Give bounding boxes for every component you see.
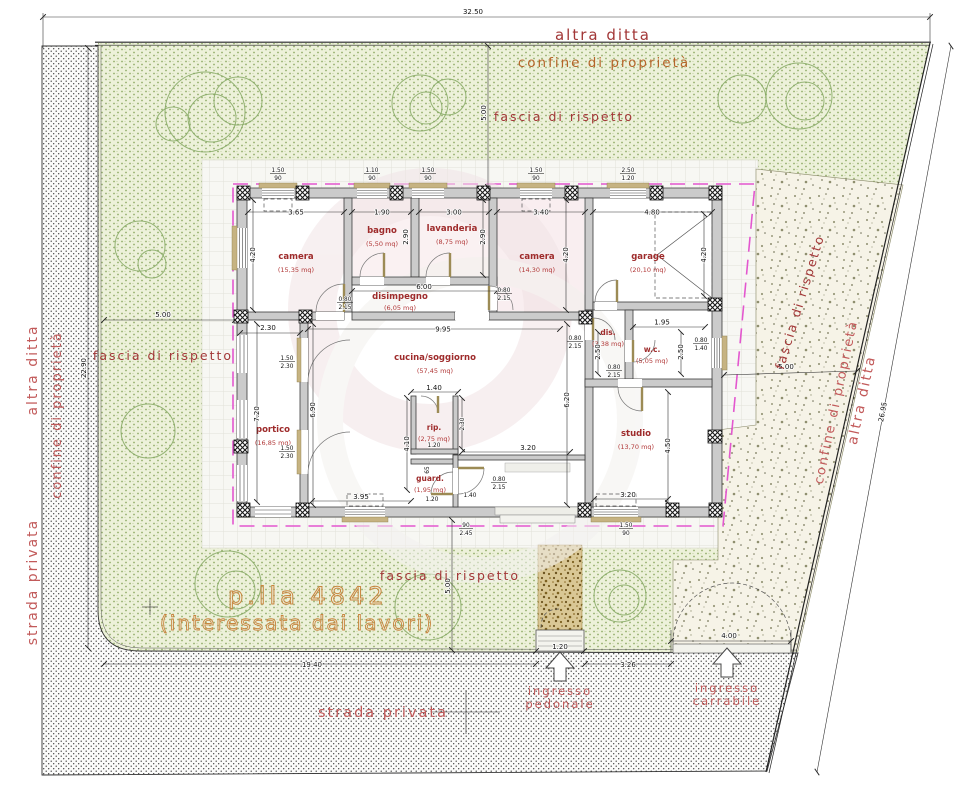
dim-camera2-w: 3.40 (533, 209, 549, 217)
stack-entry-w: 90 (462, 523, 470, 529)
stack-win1-w: 1.50 (272, 168, 285, 174)
stack-french2-h: 2.30 (281, 454, 294, 460)
room-disimpegno-label: disimpegno (372, 292, 428, 302)
window-wc-right (712, 336, 727, 370)
room-lavanderia-area: (8,75 mq) (436, 238, 468, 246)
label-confine-left: confine di proprietà (50, 331, 65, 498)
room-bagno-area: (5,50 mq) (366, 240, 398, 248)
room-rip-label: rip. (427, 423, 442, 432)
stack-entry-h: 2.45 (460, 531, 473, 537)
label-fascia-left: fascia di rispetto (93, 348, 233, 363)
dim-between-gates: 3.26 (620, 661, 636, 669)
dim-camera1-w: 3.65 (288, 209, 304, 217)
stack-win3-h: 90 (424, 176, 432, 182)
dim-rip-side: 2.30 (460, 417, 466, 430)
dim-site-top: 32.50 (463, 8, 483, 16)
stack-door1-h: 2.15 (339, 305, 352, 311)
label-parcel-note: (interessata dai lavori) (160, 611, 434, 635)
dim-setback-left: 5.00 (155, 311, 171, 319)
label-ingresso-carrabile-1: ingresso (695, 681, 759, 695)
dim-bagno-w: 1.90 (374, 209, 390, 217)
stack-studiowin-w: 1.50 (620, 523, 633, 529)
stack-win2-h: 90 (368, 176, 376, 182)
room-wc-label: w.c. (644, 345, 661, 354)
dim-rip-top: 1.40 (426, 384, 442, 392)
label-ingresso-carrabile-2: carrabile (693, 694, 761, 708)
stack-win1-h: 90 (274, 176, 282, 182)
stack-win4-w: 1.50 (530, 168, 543, 174)
dim-cucina-w: 9.95 (435, 326, 451, 334)
room-camera1-label: camera (278, 252, 314, 262)
window-lavanderia (409, 183, 447, 198)
stack-win5-w: 2.50 (622, 168, 635, 174)
label-strada-privata-left: strada privata (25, 519, 41, 646)
dim-wc-d: 2.50 (677, 344, 685, 360)
stack-win3-w: 1.50 (422, 168, 435, 174)
dim-setback-top: 5.00 (480, 105, 488, 121)
room-wc-area: (5,05 mq) (636, 357, 668, 365)
room-cucina-area: (57,45 mq) (417, 367, 453, 375)
stack-door2-w: 0.80 (498, 288, 511, 294)
room-studio-area: (13,70 mq) (618, 443, 654, 451)
dim-garage-w: 4.80 (644, 209, 660, 217)
label-ingresso-pedonale-2: pedonale (525, 697, 594, 711)
dim-gate-pedestrian: 1.20 (552, 643, 568, 651)
dim-rip-wall: 4.10 (403, 436, 411, 452)
room-bagno-label: bagno (367, 226, 397, 236)
label-ingresso-pedonale-1: ingresso (528, 684, 592, 698)
dim-lavanderia-w: 3.00 (446, 209, 462, 217)
dim-studio-side: 4.50 (664, 438, 672, 454)
stack-win5-h: 1.20 (622, 176, 635, 182)
dim-disimpegno-l: 6.00 (416, 283, 432, 291)
label-altra-ditta-left: altra ditta (25, 324, 41, 415)
stack-win4-h: 90 (532, 176, 540, 182)
dim-rip-bottom: 1.20 (428, 443, 441, 449)
label-altra-ditta-top: altra ditta (555, 26, 651, 44)
site-plan-page: camera (15,35 mq) bagno (5,50 mq) lavand… (0, 0, 968, 797)
dim-niche: 65 (425, 466, 431, 474)
dim-road-front: 19.40 (302, 661, 322, 669)
room-camera1-area: (15,35 mq) (278, 266, 314, 274)
room-garage-label: garage (631, 252, 665, 262)
room-garage-area: (20,10 mq) (630, 266, 666, 274)
dim-studio-w: 3.20 (620, 491, 636, 499)
site-plan-drawing: camera (15,35 mq) bagno (5,50 mq) lavand… (0, 0, 968, 797)
dim-wc-w: 1.95 (654, 319, 670, 327)
room-portico-label: portico (256, 425, 290, 435)
stack-door3-w: 0.80 (569, 336, 582, 342)
dim-portico-l: 7.20 (253, 406, 261, 422)
stack-door5-h: 2.15 (493, 485, 506, 491)
dim-lavanderia-d: 2.90 (479, 229, 487, 245)
dim-camera1-d: 4.20 (249, 247, 257, 263)
building: camera (15,35 mq) bagno (5,50 mq) lavand… (232, 168, 727, 570)
stack-door1-w: 0.80 (339, 297, 352, 303)
dim-camera2-d: 4.20 (562, 247, 570, 263)
dim-bagno-d: 2.90 (402, 229, 410, 245)
label-fascia-bottom: fascia di rispetto (380, 568, 520, 583)
room-disimpegno-area: (6,05 mq) (384, 304, 416, 312)
label-parcel-number: p.lla 4842 (228, 582, 388, 610)
stack-french2-w: 1.50 (281, 446, 294, 452)
dim-guard-door: 1.40 (464, 493, 477, 499)
label-confine-top: confine di proprietà (518, 55, 690, 71)
label-strada-privata-bottom: strada privata (318, 705, 448, 721)
dim-dis-d: 2.50 (594, 344, 602, 360)
dim-studio-wall: 6.20 (563, 392, 571, 408)
room-guard-label: guard. (416, 474, 444, 483)
dim-entry-w: 3.20 (520, 444, 536, 452)
stack-wcwin-h: 1.40 (695, 346, 708, 352)
dim-gate-driveway: 4.00 (721, 632, 737, 640)
stack-door4-h: 2.15 (608, 373, 621, 379)
window-camera1-left (232, 226, 247, 270)
stack-win2-w: 1.10 (366, 168, 379, 174)
window-garage (607, 183, 649, 198)
room-guard-area: (1,95 mq) (414, 486, 446, 494)
dim-cucina-d: 6.90 (309, 402, 317, 418)
stack-studiowin-h: 90 (622, 531, 630, 537)
stack-french1-w: 1.50 (281, 356, 294, 362)
room-cucina-label: cucina/soggiorno (394, 353, 476, 363)
dim-site-left: 22.90 (80, 358, 88, 378)
label-fascia-top: fascia di rispetto (494, 109, 634, 124)
stack-door3-h: 2.15 (569, 344, 582, 350)
stack-door5-w: 0.80 (493, 477, 506, 483)
room-camera2-area: (14,30 mq) (519, 266, 555, 274)
room-dis-label: dis. (600, 328, 615, 337)
room-rip-area: (2,75 mq) (418, 435, 450, 443)
dim-garage-d: 4.20 (700, 247, 708, 263)
dim-site-right: 26.95 (877, 401, 889, 422)
room-studio-label: studio (621, 429, 651, 439)
room-camera2-label: camera (519, 252, 555, 262)
stack-wcwin-w: 0.80 (695, 338, 708, 344)
stack-door4-w: 0.80 (608, 365, 621, 371)
window-bagno (354, 183, 390, 198)
dim-guard-w: 1.20 (426, 497, 439, 503)
dim-cucina-bottom: 3.95 (353, 493, 369, 501)
stack-french1-h: 2.30 (281, 364, 294, 370)
stack-door2-h: 2.15 (498, 296, 511, 302)
dim-portico-w: 2.30 (260, 324, 276, 332)
room-lavanderia-label: lavanderia (427, 224, 478, 234)
